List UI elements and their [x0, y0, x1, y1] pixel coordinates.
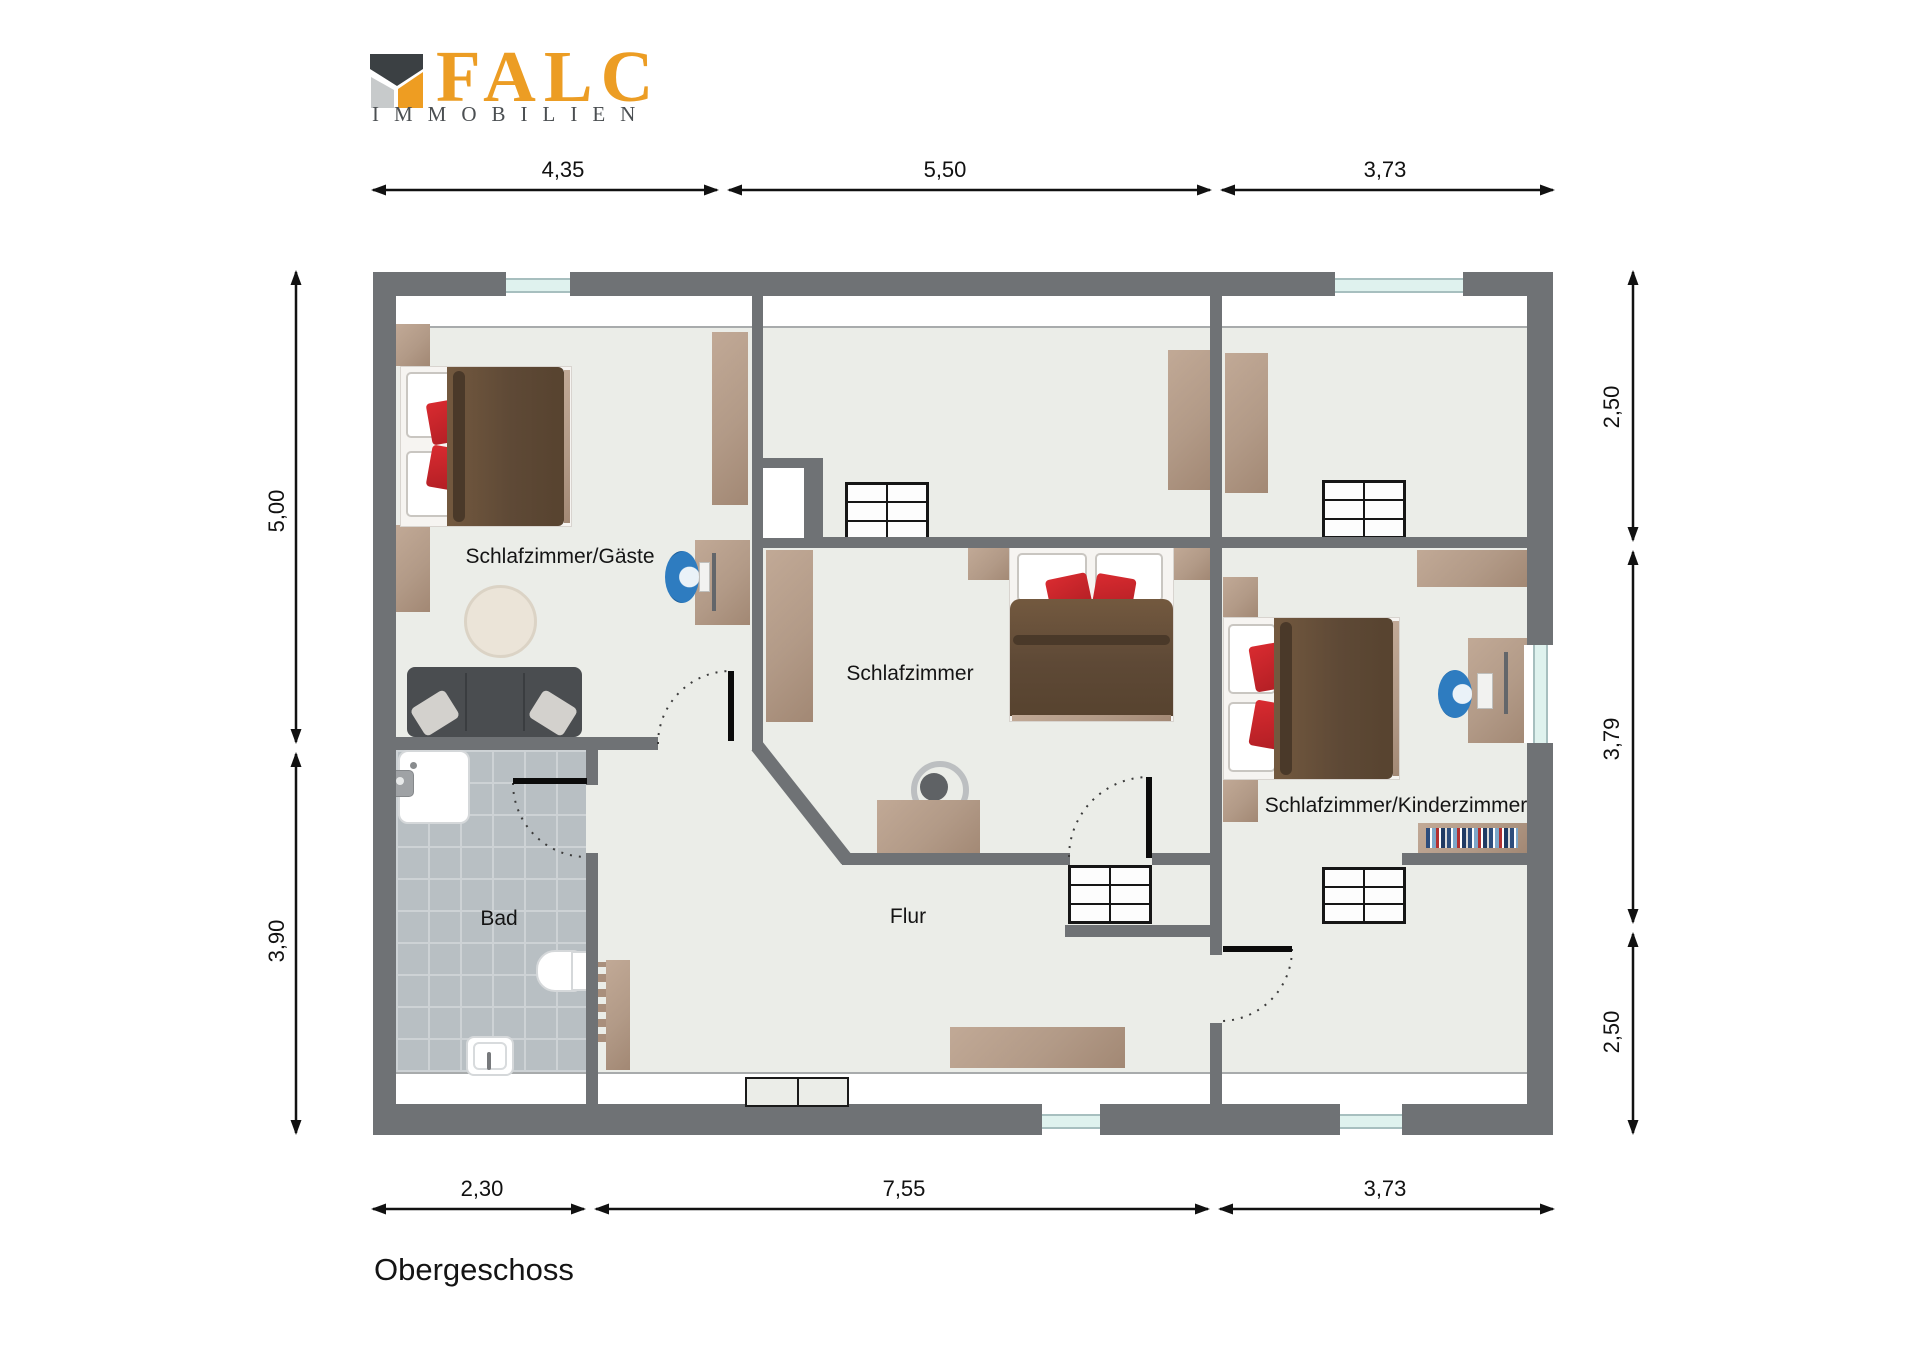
wall-flur-north-east	[1152, 853, 1210, 865]
wardrobe	[396, 324, 430, 366]
wall-kids-niche	[1402, 853, 1527, 865]
window	[1524, 645, 1556, 743]
double-bed-kids	[1223, 617, 1400, 780]
wall-kids-north	[1222, 537, 1527, 548]
floor-title: Obergeschoss	[374, 1252, 574, 1288]
sofa	[407, 667, 582, 737]
desk-chair	[665, 551, 699, 603]
bed-footboard	[1012, 715, 1171, 721]
room-label-bad: Bad	[480, 907, 517, 931]
sideboard	[950, 1027, 1125, 1068]
duvet-fold	[453, 371, 465, 522]
bed-duvet	[1010, 599, 1173, 716]
dresser	[1322, 867, 1406, 924]
wall-divider-east-lower	[1210, 1023, 1222, 1135]
dim-label-right-1: 2,50	[1599, 386, 1625, 429]
stool-seat	[920, 773, 948, 801]
sofa-seam	[523, 673, 525, 731]
room-label-schlafzimmer-gaeste: Schlafzimmer/Gäste	[465, 545, 654, 569]
bed-footboard	[1393, 621, 1399, 776]
wardrobe	[396, 525, 430, 612]
keyboard	[1477, 673, 1493, 709]
chimney	[752, 458, 823, 548]
duvet-fold	[1280, 622, 1292, 775]
wall-middle-north	[823, 537, 1210, 548]
headroom-line-bottom	[396, 1072, 1527, 1074]
knee-wall-strip-bottom	[396, 1074, 1527, 1104]
room-label-schlafzimmer: Schlafzimmer	[846, 662, 973, 686]
nightstand	[968, 548, 1012, 580]
wardrobe	[1168, 350, 1210, 490]
round-rug	[464, 585, 537, 658]
window	[506, 267, 570, 300]
dim-label-left-2: 3,90	[264, 920, 290, 963]
wall-stairwell	[1065, 925, 1210, 937]
wall-bath-north	[396, 737, 658, 750]
room-label-schlafzimmer-kinderzimmer: Schlafzimmer/Kinderzimmer	[1265, 794, 1528, 818]
wardrobe	[1225, 353, 1268, 493]
keyboard	[699, 562, 710, 592]
dim-label-top-1: 4,35	[542, 157, 585, 183]
door-leaf-guest-room	[728, 671, 734, 741]
door-leaf-kids-room	[1223, 946, 1292, 952]
radiator	[606, 960, 630, 1070]
stair-tread-line	[797, 1079, 799, 1105]
sofa-cushion	[410, 689, 461, 737]
sofa-cushion	[528, 689, 579, 737]
tall-wardrobe	[766, 550, 813, 722]
dim-label-top-2: 5,50	[924, 157, 967, 183]
wall-divider-east-upper	[1210, 296, 1222, 955]
monitor	[712, 553, 716, 611]
nightstand	[1223, 577, 1258, 617]
wall-outer-left	[373, 272, 396, 1135]
wall-bath-east-lower	[586, 853, 598, 1104]
dim-label-top-3: 3,73	[1364, 157, 1407, 183]
bed-footboard	[564, 370, 570, 523]
dim-label-left-1: 5,00	[264, 490, 290, 533]
bookshelf	[1418, 823, 1527, 853]
sofa-seam	[465, 673, 467, 731]
duvet-fold	[1013, 635, 1170, 645]
double-bed-middle	[1009, 547, 1174, 722]
sink	[466, 1036, 514, 1076]
shower-drain	[410, 762, 417, 769]
dim-label-bottom-1: 2,30	[461, 1176, 504, 1202]
staircase	[745, 1077, 849, 1107]
radiator-fins	[597, 962, 606, 1042]
door-leaf-bath	[513, 778, 587, 784]
dresser	[845, 482, 929, 541]
tall-wardrobe	[712, 332, 748, 505]
window	[1042, 1102, 1100, 1138]
wall-bath-east-upper	[586, 750, 598, 785]
dim-label-bottom-3: 3,73	[1364, 1176, 1407, 1202]
table	[877, 800, 980, 858]
chimney-shaft	[763, 468, 804, 538]
nightstand	[1223, 778, 1258, 822]
bed-duvet	[447, 367, 564, 526]
door-leaf-middle-room	[1146, 777, 1152, 858]
bed-duvet	[1274, 618, 1393, 779]
window	[1335, 267, 1463, 300]
desk-chair	[1438, 670, 1472, 718]
desk	[1468, 638, 1527, 743]
headroom-line-top	[396, 326, 1527, 328]
room-label-flur: Flur	[890, 905, 926, 929]
monitor	[1504, 652, 1508, 714]
desk	[695, 540, 750, 625]
dim-label-bottom-2: 7,55	[883, 1176, 926, 1202]
knee-wall-strip-top	[396, 296, 1527, 326]
floorplan-page: FALC IMMOBILIEN	[0, 0, 1920, 1357]
logo-subtitle-text: IMMOBILIEN	[372, 102, 650, 127]
dresser	[1068, 865, 1152, 924]
sink-tap	[487, 1052, 491, 1070]
dresser	[1322, 480, 1406, 539]
window	[1340, 1102, 1402, 1138]
wall-flur-north-west	[842, 853, 1070, 865]
sideboard	[1417, 550, 1527, 587]
dim-label-right-2: 3,79	[1599, 718, 1625, 761]
double-bed-guest	[400, 366, 572, 527]
nightstand	[1173, 548, 1210, 580]
dim-label-right-3: 2,50	[1599, 1011, 1625, 1054]
books	[1426, 828, 1518, 848]
fitting-knob	[396, 777, 404, 785]
